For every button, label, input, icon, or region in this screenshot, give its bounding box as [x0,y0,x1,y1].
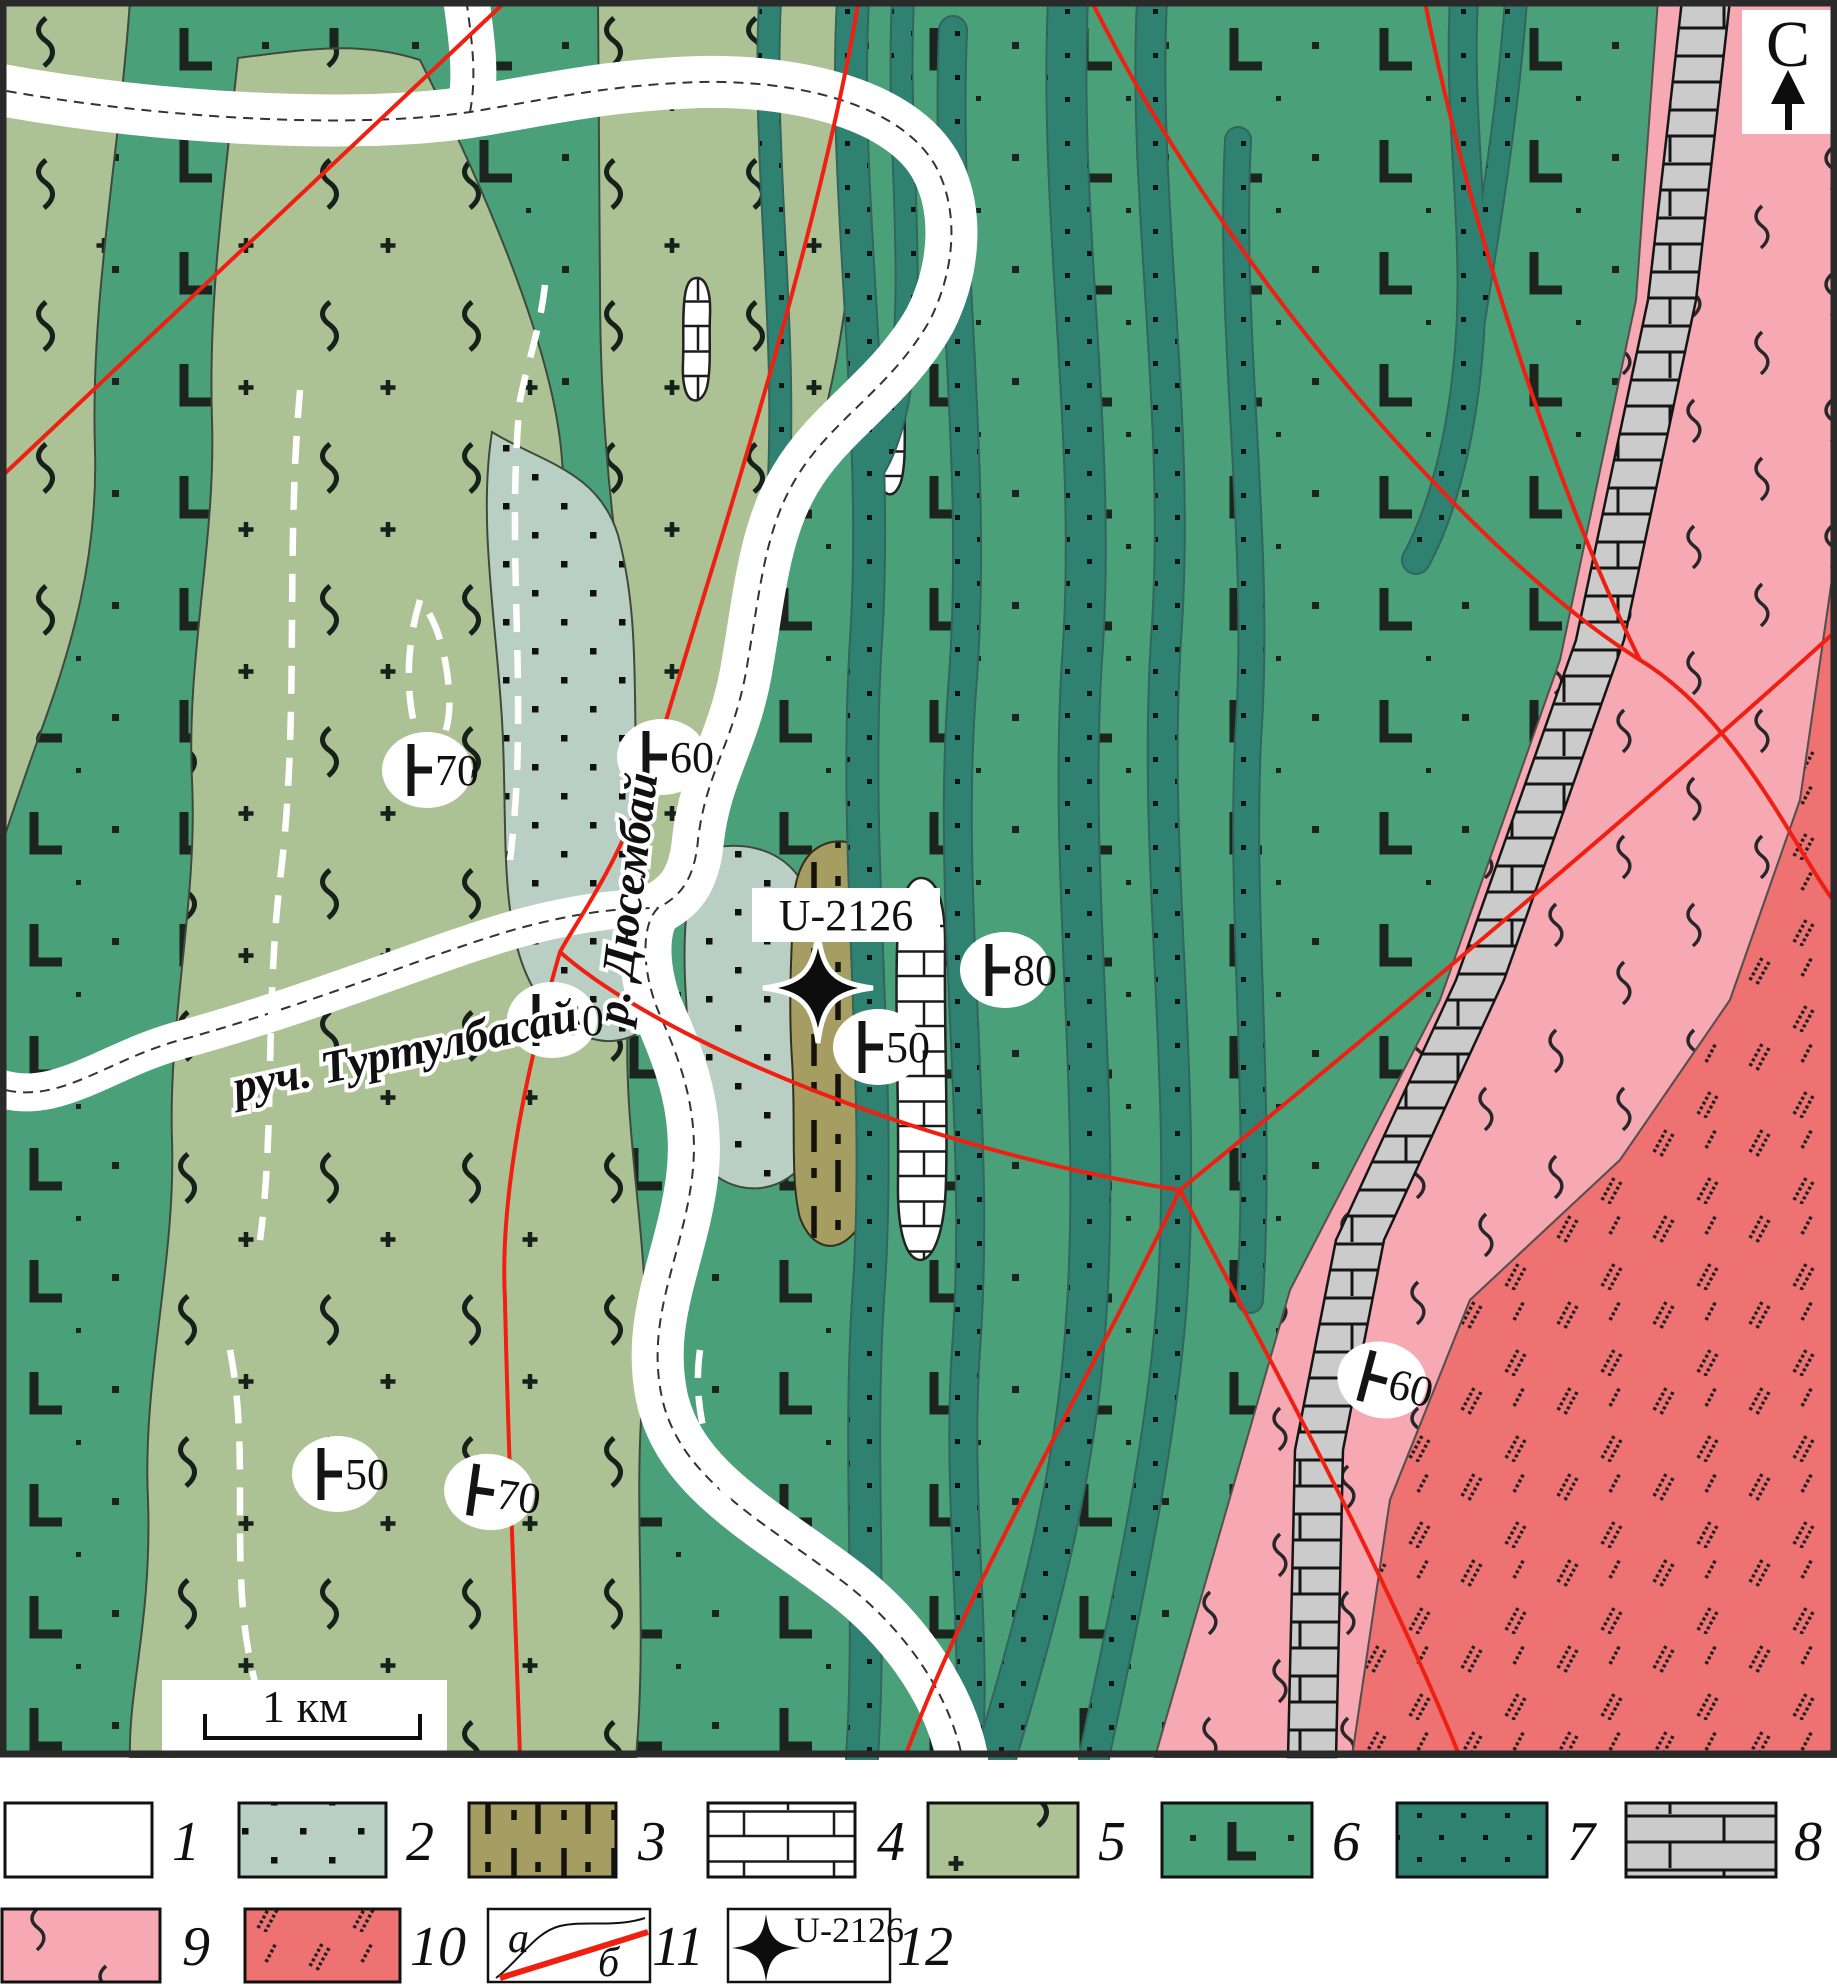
svg-text:70: 70 [435,746,479,795]
legend-line-b-label: б [598,1940,621,1985]
svg-text:50: 50 [345,1450,389,1499]
legend-swatch-4 [708,1803,855,1877]
sample-station-label: U-2126 [779,891,913,940]
scale-bar: 1 км [162,1680,447,1754]
legend-number-12: 12 [897,1916,953,1978]
legend-number-10: 10 [410,1916,466,1978]
legend-swatch-3 [469,1803,616,1877]
svg-text:70: 70 [493,1469,543,1524]
legend-number-3: 3 [637,1811,666,1873]
legend-swatch-1 [5,1803,152,1877]
legend-number-6: 6 [1332,1811,1360,1873]
legend-number-1: 1 [172,1811,200,1873]
legend-swatch-2 [239,1803,386,1877]
legend-number-8: 8 [1794,1811,1822,1873]
legend-number-9: 9 [182,1916,210,1978]
legend-number-4: 4 [877,1811,905,1873]
legend-number-2: 2 [406,1811,434,1873]
geologic-map-page: 70 60 50 80 50 50 70 60 U-2126 р. Дюсемб… [0,0,1837,1985]
scale-label: 1 км [262,1681,348,1732]
legend-number-11: 11 [652,1916,704,1978]
legend-swatch-9 [2,1909,160,1982]
svg-text:80: 80 [1013,946,1057,995]
geologic-map: 70 60 50 80 50 50 70 60 U-2126 р. Дюсемб… [0,0,1837,1760]
svg-text:50: 50 [886,1023,930,1072]
legend-line-a-label: а [508,1916,529,1962]
legend-number-5: 5 [1098,1811,1126,1873]
north-arrow: С [1742,8,1835,134]
legend-swatch-10 [245,1909,400,1982]
svg-text:60: 60 [670,733,714,782]
legend-number-7: 7 [1567,1811,1597,1873]
legend-swatch-5 [928,1803,1078,1877]
map-legend: 1 2 3 4 5 6 7 8 а б U-2126 9 10 11 12 [0,1760,1837,1985]
legend-swatch-7 [1397,1803,1547,1877]
legend-swatch-8 [1626,1803,1776,1877]
legend-station-label: U-2126 [794,1910,904,1950]
